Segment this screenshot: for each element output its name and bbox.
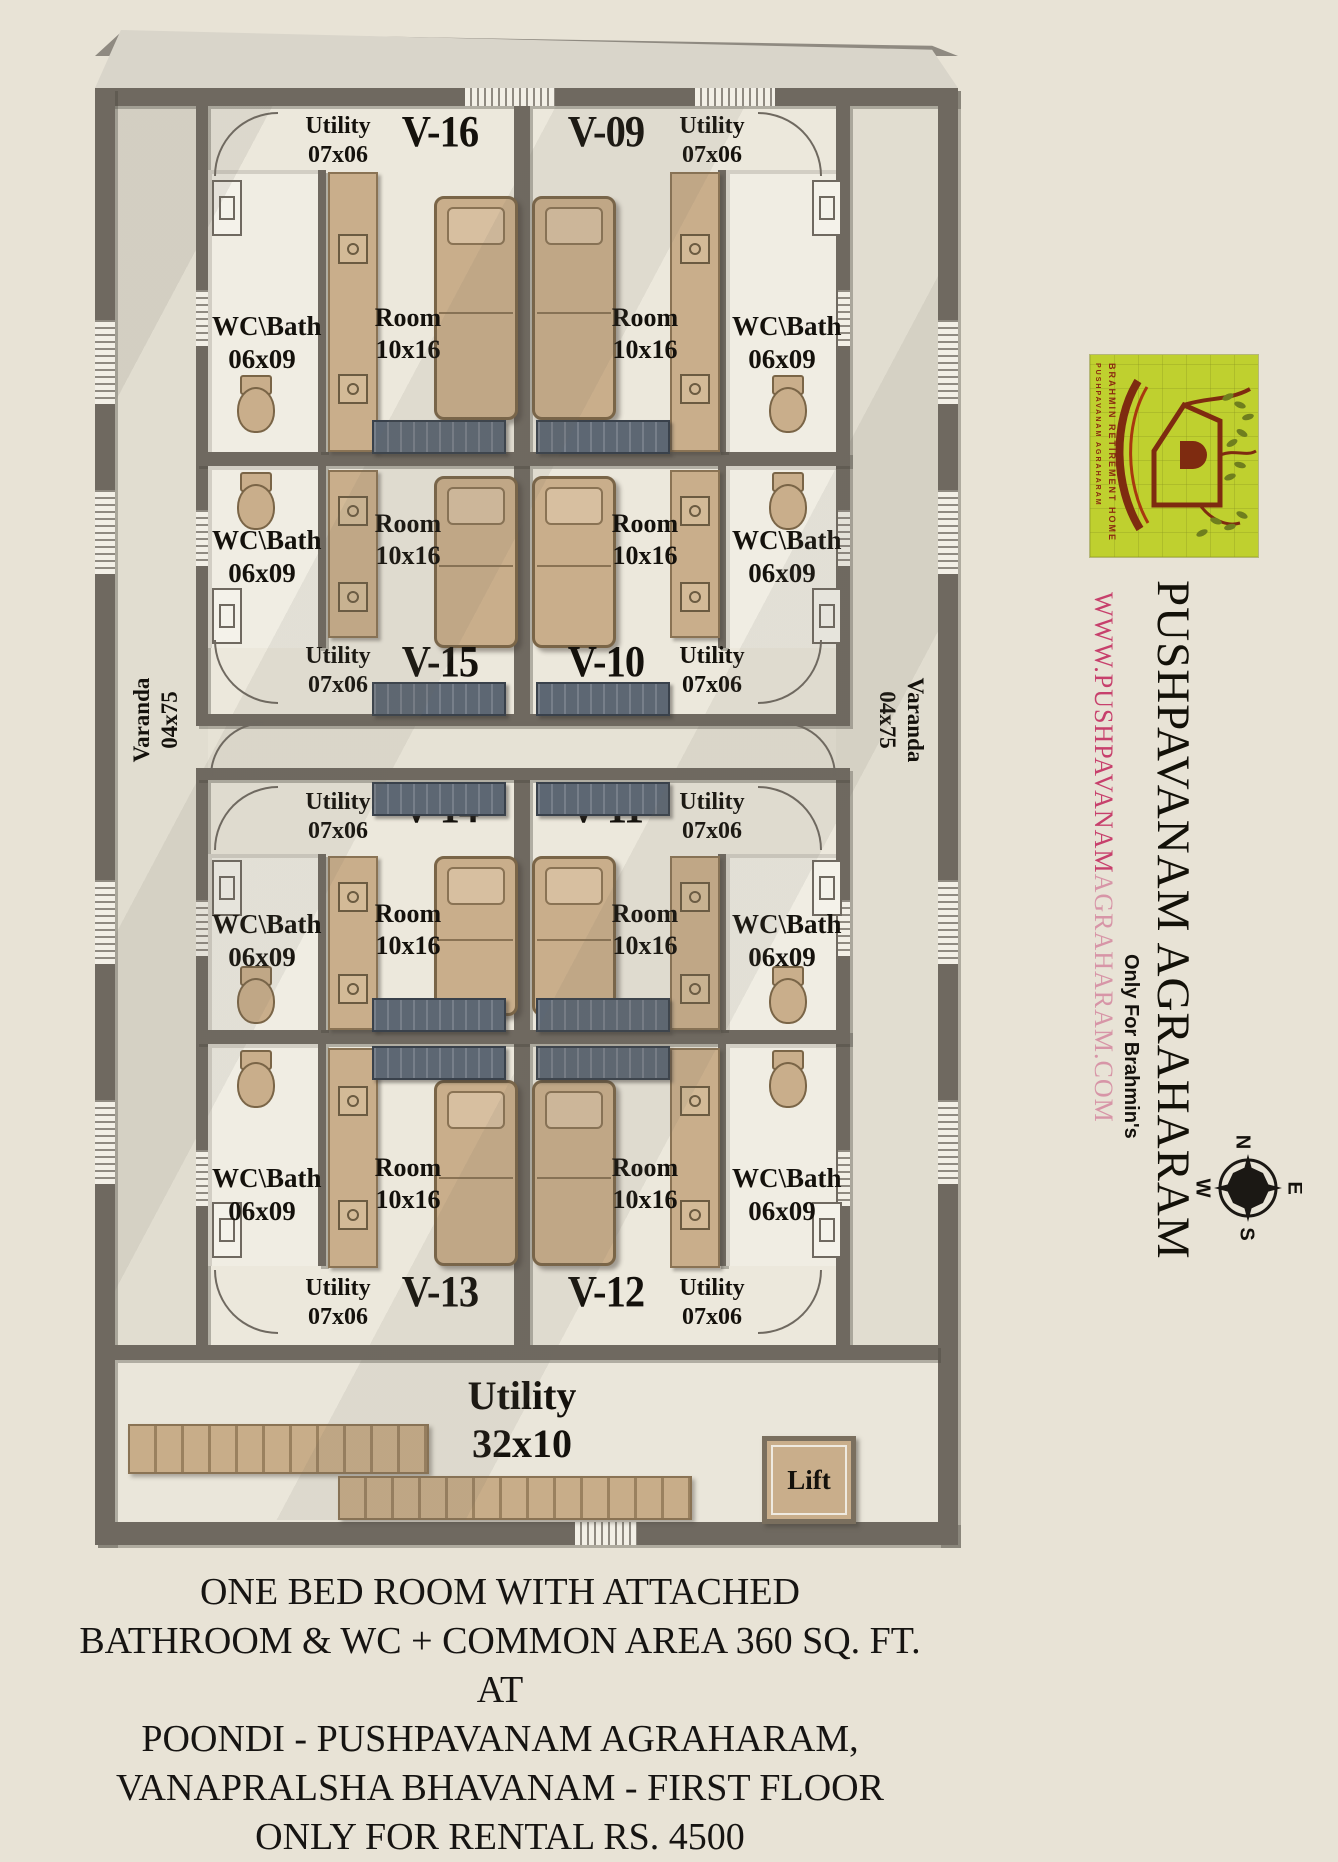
caption-line: VANAPRALSHA BHAVANAM - FIRST FLOOR [70,1764,930,1813]
unit-title: V-12 [555,1268,656,1316]
bath-size: 06x09 [732,941,832,974]
compass-e: E [1284,1181,1302,1194]
room-size: 10x16 [366,540,450,572]
utility-size: 07x06 [290,1303,386,1332]
varanda-name: Varanda [903,678,928,763]
bath-label: WC\Bath [732,908,832,941]
window-left-3 [95,880,115,964]
wall-utility-top [115,1345,938,1360]
window-left-4 [95,1100,115,1184]
unit-title: V-15 [389,638,490,686]
room-label: Room [366,302,450,334]
caption-line: ONLY FOR RENTAL RS. 4500 [70,1813,930,1862]
caption-line: POONDI - PUSHPAVANAM AGRAHARAM, [70,1715,930,1764]
washbasin-icon [812,588,842,644]
window-top-1 [465,88,555,106]
room-label: Room [366,898,450,930]
room-label: Room [603,898,687,930]
utility-size: 07x06 [290,141,386,170]
bench [372,420,506,454]
bath-size: 06x09 [732,343,832,376]
utility-label: Utility [664,1274,760,1303]
utility-size: 07x06 [664,671,760,700]
wall-row1-row2 [196,452,850,466]
room-label: Room [366,508,450,540]
room-size: 10x16 [366,334,450,366]
toilet-icon [769,375,803,429]
entrance-steps [575,1522,637,1545]
utility-size: 07x06 [664,1303,760,1332]
washbasin-icon [212,180,242,236]
wall-corridor-top [196,714,850,726]
room-size: 10x16 [603,334,687,366]
bath-size: 06x09 [212,1195,312,1228]
window-top-2 [695,88,775,106]
wall-bath-v15 [318,466,326,648]
caption-block: ONE BED ROOM WITH ATTACHED BATHROOM & WC… [70,1568,930,1862]
stove-icon [338,1086,368,1116]
bench [372,998,506,1032]
utility-label: Utility [290,112,386,141]
bench [536,998,670,1032]
window-bath-v16 [196,290,208,346]
window-bath-v14 [196,900,208,956]
toilet-icon [237,472,271,526]
stove-icon [338,496,368,526]
toilet-icon [769,966,803,1020]
window-bath-v15 [196,510,208,566]
wall-right [938,88,958,1545]
toilet-icon [769,472,803,526]
compass-n: N [1232,1135,1254,1149]
sink-counter-icon [338,1200,368,1230]
staircase-lower-flight [338,1476,692,1520]
stove-icon [338,234,368,264]
room-size: 10x16 [366,930,450,962]
brand-title: PUSHPAVANAM AGRAHARAM [1146,580,1200,1210]
utility-label: Utility [664,788,760,817]
room-size: 10x16 [366,1184,450,1216]
unit-title: V-13 [389,1268,490,1316]
window-right-2 [938,490,958,574]
common-utility-label: Utility 32x10 [392,1372,652,1468]
caption-line: BATHROOM & WC + COMMON AREA 360 SQ. FT. … [70,1617,930,1715]
sink-counter-icon [680,374,710,404]
varanda-size: 04x75 [875,691,900,749]
bath-label: WC\Bath [732,524,832,557]
wall-bath-v13 [318,1044,326,1266]
varanda-label-right: Varanda 04x75 [871,650,929,790]
brand-logo: PUSHPAVANAM AGRAHARAM BRAHMIN RETIREMENT… [1090,355,1258,557]
room-size: 10x16 [603,540,687,572]
bench [536,1046,670,1080]
utility-label: Utility [290,642,386,671]
washbasin-icon [812,180,842,236]
toilet-icon [237,966,271,1020]
wall-bottom [95,1522,958,1545]
wall-row3-row4 [196,1030,850,1044]
bench [536,682,670,716]
toilet-icon [237,1050,271,1104]
wall-corridor-bottom [196,768,850,780]
bench [372,1046,506,1080]
unit-title: V-09 [555,108,656,156]
wall-veranda-left-lower [196,780,208,1345]
bath-label: WC\Bath [212,310,312,343]
bench [536,420,670,454]
bench [372,782,506,816]
window-bath-v13 [196,1150,208,1206]
bench [536,782,670,816]
lift-label: Lift [787,1465,831,1496]
website-url-rest: AGRAHARAM.COM [1089,874,1118,1123]
window-right-4 [938,1100,958,1184]
room-size: 10x16 [603,930,687,962]
window-left-2 [95,490,115,574]
staircase-upper-flight [128,1424,429,1474]
washbasin-icon [212,588,242,644]
compass-w: W [1194,1179,1214,1198]
varanda-label-left: Varanda 04x75 [128,650,186,790]
utility-label: Utility [290,1274,386,1303]
website-url-strong: WWW.PUSHPAVANAM [1089,592,1118,874]
wall-left [95,88,115,1545]
bath-label: WC\Bath [732,1162,832,1195]
utility-label: Utility [664,642,760,671]
corridor-floor [208,726,836,768]
stove-icon [680,1086,710,1116]
bath-label: WC\Bath [212,524,312,557]
room-label: Room [603,1152,687,1184]
utility-size: 07x06 [664,817,760,846]
bath-label: WC\Bath [212,908,312,941]
bath-size: 06x09 [732,1195,832,1228]
website-url: WWW.PUSHPAVANAMAGRAHARAM.COM [1088,592,1118,1202]
toilet-icon [769,1050,803,1104]
logo-house-tree-icon [1090,355,1258,557]
room-size: 10x16 [603,1184,687,1216]
varanda-name: Varanda [129,678,154,763]
compass-s: S [1236,1227,1258,1240]
caption-line: ONE BED ROOM WITH ATTACHED [70,1568,930,1617]
bath-label: WC\Bath [212,1162,312,1195]
unit-title: V-10 [555,638,656,686]
window-right-3 [938,880,958,964]
bath-size: 06x09 [212,557,312,590]
utility-size: 07x06 [664,141,760,170]
varanda-size: 04x75 [157,691,182,749]
sink-counter-icon [680,974,710,1004]
wall-veranda-left-upper [196,106,208,714]
bench [372,682,506,716]
window-left-1 [95,320,115,404]
unit-title: V-16 [389,108,490,156]
compass-rose-icon: N E S W [1194,1134,1302,1242]
sink-counter-icon [338,974,368,1004]
toilet-icon [237,375,271,429]
sink-counter-icon [338,374,368,404]
tagline: Only For Brahmin's [1119,954,1142,1194]
sink-counter-icon [338,582,368,612]
utility-label: Utility [664,112,760,141]
common-utility-name: Utility [468,1373,577,1418]
bath-size: 06x09 [212,941,312,974]
utility-size: 07x06 [290,817,386,846]
bath-size: 06x09 [732,557,832,590]
sink-counter-icon [680,582,710,612]
bath-size: 06x09 [212,343,312,376]
common-utility-size: 32x10 [472,1421,572,1466]
window-right-1 [938,320,958,404]
room-label: Room [603,508,687,540]
room-label: Room [603,302,687,334]
bath-label: WC\Bath [732,310,832,343]
stove-icon [680,234,710,264]
wall-bath-v14 [318,854,326,1030]
floor-plan-poster: { "plan": { "units": [ {"id":"V-16","uti… [0,0,1338,1856]
plan-top-band-3d [95,30,958,88]
room-label: Room [366,1152,450,1184]
lift: Lift [762,1436,856,1524]
stove-icon [338,882,368,912]
